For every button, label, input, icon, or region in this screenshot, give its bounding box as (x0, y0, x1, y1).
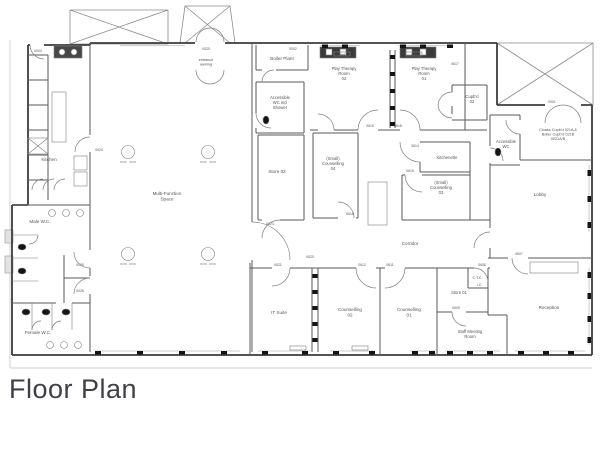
room-label-store-02: Store 02 (268, 169, 286, 174)
door-tag-0617: 0617 (451, 62, 459, 66)
room-label-cloaks-cupbd: Cloaks Cupb'd 021A &Boiler Cupb'd 021B00… (539, 128, 577, 141)
room-label-cupbd-02: Cupb'd02 (465, 94, 479, 104)
room-label-male-wc: Male W.C. (29, 219, 50, 224)
exterior-openings (30, 43, 581, 105)
room-label-kitchenette: Kitchenette (437, 155, 459, 160)
room-labels: KitchenMale W.C.Female W.C.Multi-Functio… (25, 53, 578, 339)
room-label-counselling-01: Counselling01 (397, 307, 421, 317)
door-tag-0614: 0614 (411, 144, 419, 148)
door-tag-0611: 0611 (386, 263, 393, 267)
door-tag-0609: 0609 (452, 306, 460, 310)
room-label-entrance-awning: entranceawning (199, 58, 214, 67)
fixtures (12, 46, 578, 350)
room-label-boiler-plant: Boiler Plant (270, 56, 294, 61)
page-title: Floor Plan (9, 374, 137, 405)
door-tag-0621: 0621 (274, 263, 282, 267)
door-tag-0004: 0004 (34, 49, 42, 53)
door-tag-0001: 0001 (548, 100, 556, 104)
room-label-kitchen: Kitchen (41, 157, 57, 162)
door-tag-0620: 0620 (306, 255, 314, 259)
door-tag-0002: 0002 (289, 47, 297, 51)
room-label-play-therapy-02: Play TherapyRoom02 (332, 66, 358, 81)
room-label-corridor: Corridor (402, 241, 419, 246)
room-label-reception: Reception (539, 305, 560, 310)
room-label-counselling-02: Counselling02 (338, 307, 362, 317)
room-label-small-counselling-03: (Small)Counselling03 (430, 180, 453, 195)
drawing-frame (10, 40, 592, 368)
room-label-ctc: C.T.C (473, 276, 482, 280)
door-number-tags: 0004002400200002002306200025002606190618… (34, 47, 556, 310)
door-tag-0618: 0618 (394, 124, 402, 128)
door-tag-0024: 0024 (95, 148, 103, 152)
door-tag-0026: 0026 (76, 289, 84, 293)
door-tag-0608: 0608 (478, 263, 486, 267)
interior-walls (12, 43, 592, 355)
door-tag-0615: 0615 (406, 169, 414, 173)
room-label-female-wc: Female W.C. (25, 330, 52, 335)
door-arcs (29, 28, 581, 330)
door-tag-0619: 0619 (366, 124, 374, 128)
room-label-ic: I.C (477, 283, 482, 287)
exterior-walls (12, 43, 592, 355)
room-label-staff-meeting: Staff MeetingRoom (458, 329, 483, 339)
room-label-accessible-wc-shower: AccessibleWC inclShower (270, 95, 291, 110)
room-label-store-01: Store 01 (451, 290, 468, 295)
room-label-multi-function-space: Multi-FunctionSpace (153, 191, 182, 201)
room-label-it-suite: IT Suite (271, 310, 287, 315)
room-label-rad-1: Rad (339, 53, 345, 57)
room-label-small-counselling-04: (Small)Counselling04 (322, 156, 345, 171)
floor-plan-page: KitchenMale W.C.Female W.C.Multi-Functio… (0, 0, 600, 450)
room-label-play-therapy-01: Play TherapyRoom01 (412, 66, 438, 81)
door-tag-0020: 0020 (202, 47, 210, 51)
door-tag-0616: 0616 (346, 212, 354, 216)
room-label-rad-2: Rad (411, 53, 417, 57)
door-tag-0612: 0612 (358, 263, 366, 267)
door-tag-0023: 0023 (266, 222, 274, 226)
room-label-accessible-wc: AccessibleWC (496, 139, 517, 149)
door-tag-0025: 0025 (76, 263, 84, 267)
door-tag-0607: 0607 (515, 252, 523, 256)
room-label-lobby: Lobby (534, 192, 547, 197)
